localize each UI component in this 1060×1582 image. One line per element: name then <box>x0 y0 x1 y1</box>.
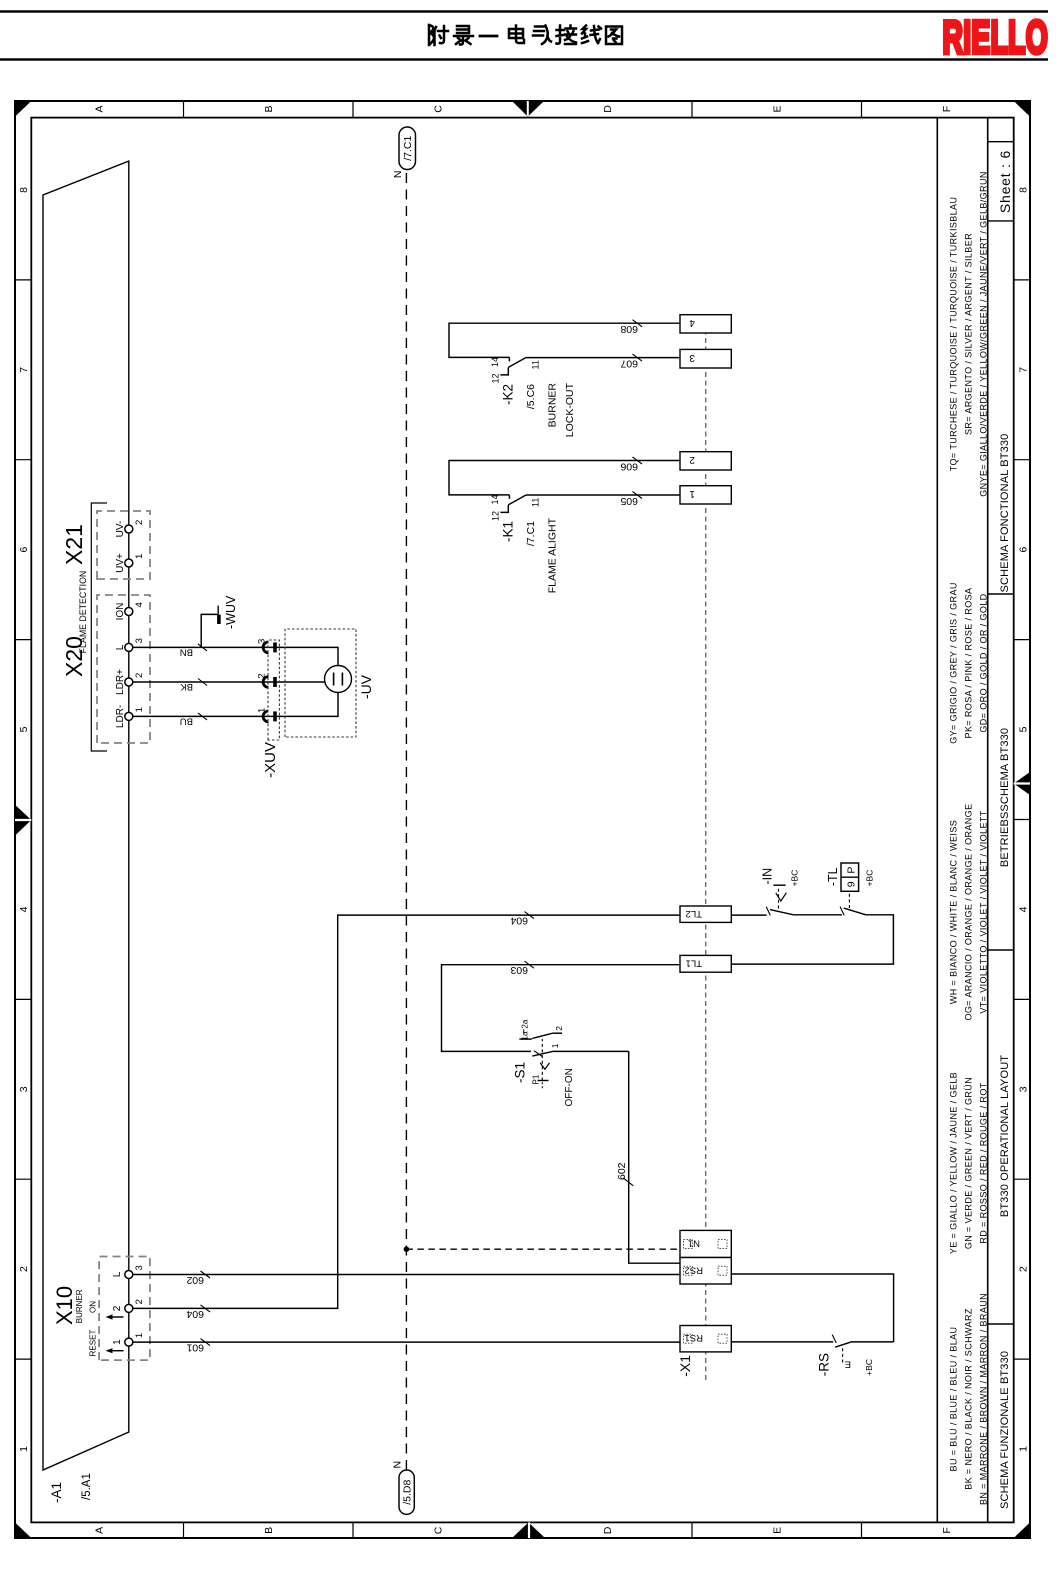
svg-text:604: 604 <box>510 915 528 927</box>
svg-text:RD = ROSSO / RED / ROUGE / ROT: RD = ROSSO / RED / ROUGE / ROT <box>979 1082 989 1243</box>
svg-text:1: 1 <box>550 1043 560 1048</box>
svg-text:E: E <box>772 1527 784 1534</box>
svg-text:2: 2 <box>554 1026 564 1031</box>
svg-text:2: 2 <box>689 454 695 465</box>
svg-text:+BC: +BC <box>790 870 800 887</box>
svg-text:P: P <box>846 867 858 874</box>
svg-text:-S1: -S1 <box>513 1062 528 1083</box>
svg-text:8: 8 <box>18 187 30 193</box>
svg-text:2: 2 <box>134 520 145 525</box>
svg-text:-XUV: -XUV <box>262 742 279 778</box>
svg-text:A: A <box>94 1527 106 1534</box>
svg-text:D: D <box>602 1526 614 1534</box>
svg-text:2: 2 <box>257 673 268 678</box>
svg-text:+BC: +BC <box>865 870 875 887</box>
svg-text:SR= ARGENTO / SILVER / ARGENT: SR= ARGENTO / SILVER / ARGENT / SILBER <box>964 233 974 435</box>
svg-text:GD= ORO / GOLD / OR / GOLD: GD= ORO / GOLD / OR / GOLD <box>979 593 989 732</box>
svg-text:FLAME ALIGHT: FLAME ALIGHT <box>547 517 559 593</box>
svg-text:14: 14 <box>490 357 500 367</box>
svg-text:2: 2 <box>134 1299 145 1304</box>
svg-text:-UV: -UV <box>358 674 374 699</box>
svg-text:OFF-ON: OFF-ON <box>564 1068 575 1106</box>
svg-text:-X1: -X1 <box>677 1355 693 1377</box>
svg-text:1: 1 <box>257 708 268 713</box>
svg-text:1: 1 <box>134 1333 145 1338</box>
svg-text:X21: X21 <box>61 524 87 565</box>
svg-text:+BC: +BC <box>864 1359 874 1376</box>
svg-text:3: 3 <box>1018 1086 1030 1092</box>
svg-text:RIELLO: RIELLO <box>943 12 1049 64</box>
svg-text:BU = BLU / BLUE / BLEU / BLAU: BU = BLU / BLUE / BLEU / BLAU <box>949 1327 959 1472</box>
svg-text:-TL: -TL <box>826 867 840 886</box>
svg-text:3: 3 <box>134 1265 145 1270</box>
svg-text:VT= VIOLETTO / VIOLET / VIOLET: VT= VIOLETTO / VIOLET / VIOLET / VIOLETT <box>979 810 989 1013</box>
svg-text:6: 6 <box>1018 547 1030 553</box>
svg-text:5: 5 <box>18 726 30 732</box>
svg-text:X10: X10 <box>52 1286 77 1325</box>
svg-text:C: C <box>433 1526 445 1534</box>
svg-text:P1: P1 <box>532 1074 541 1084</box>
svg-text:-K1: -K1 <box>501 521 516 542</box>
svg-text:LOCK-OUT: LOCK-OUT <box>564 382 576 437</box>
svg-text:E: E <box>845 1359 851 1370</box>
svg-text:-K2: -K2 <box>501 384 516 405</box>
svg-text:603: 603 <box>510 964 528 976</box>
svg-text:SCHEMA FONCTIONAL BT330: SCHEMA FONCTIONAL BT330 <box>999 434 1011 593</box>
svg-text:BURNER: BURNER <box>75 1289 84 1323</box>
svg-text:606: 606 <box>620 460 638 472</box>
svg-text:BT330 OPERATIONAL LAYOUT: BT330 OPERATIONAL LAYOUT <box>999 1055 1011 1217</box>
svg-text:TL1: TL1 <box>686 958 702 969</box>
svg-text:/5.C6: /5.C6 <box>525 384 537 409</box>
svg-text:1: 1 <box>134 707 145 712</box>
svg-text:E: E <box>772 105 784 112</box>
svg-text:SCHEMA FUNZIONALE BT330: SCHEMA FUNZIONALE BT330 <box>999 1351 1011 1509</box>
svg-text:7: 7 <box>18 367 30 373</box>
svg-text:602: 602 <box>186 1274 204 1286</box>
svg-text:N: N <box>392 171 404 179</box>
svg-text:4: 4 <box>134 602 145 607</box>
svg-text:C: C <box>433 105 445 113</box>
svg-text:3: 3 <box>257 639 268 644</box>
svg-text:3: 3 <box>134 638 145 643</box>
svg-text:11: 11 <box>531 360 541 369</box>
svg-text:GNYE= GIALLO/VERDE / YELLOW/GR: GNYE= GIALLO/VERDE / YELLOW/GREEN / JAUN… <box>979 171 989 497</box>
svg-text:TQ= TURCHESE / TURQUOISE / TUR: TQ= TURCHESE / TURQUOISE / TURQUOISE / T… <box>949 197 959 472</box>
svg-text:4: 4 <box>1018 906 1030 912</box>
svg-text:B: B <box>263 105 275 112</box>
svg-text:A: A <box>94 105 106 112</box>
svg-text:WH = BIANCO / WHITE / BLANC /: WH = BIANCO / WHITE / BLANC / WEISS <box>949 820 959 1004</box>
svg-text:5: 5 <box>1018 726 1030 732</box>
svg-text:4: 4 <box>689 317 695 328</box>
svg-text:12: 12 <box>491 373 501 383</box>
svg-text:602: 602 <box>616 1162 628 1180</box>
svg-text:2: 2 <box>18 1266 30 1272</box>
svg-text:BK: BK <box>180 681 193 692</box>
svg-text:601: 601 <box>186 1342 204 1354</box>
svg-text:BETRIEBSSCHEMA BT330: BETRIEBSSCHEMA BT330 <box>999 728 1011 867</box>
svg-text:-RS: -RS <box>817 1353 832 1376</box>
svg-text:OG= ARANCIO / ORANGE / ORANGE: OG= ARANCIO / ORANGE / ORANGE / ORANGE <box>964 804 974 1021</box>
svg-text:BURNER: BURNER <box>547 383 559 428</box>
svg-text:2a: 2a <box>521 1019 530 1028</box>
svg-text:GN = VERDE / GREEN / VERT / GR: GN = VERDE / GREEN / VERT / GRÜN <box>964 1077 974 1249</box>
svg-text:12: 12 <box>491 511 501 521</box>
svg-text:PK= ROSA / PINK / ROSE / ROSA: PK= ROSA / PINK / ROSE / ROSA <box>964 588 974 739</box>
svg-text:-A1: -A1 <box>49 1482 64 1503</box>
svg-text:FLAME DETECTION: FLAME DETECTION <box>78 571 88 654</box>
svg-text:3: 3 <box>18 1086 30 1092</box>
svg-text:1: 1 <box>689 488 695 499</box>
svg-text:F: F <box>941 1527 953 1533</box>
svg-text:N: N <box>392 1461 404 1469</box>
svg-text:605: 605 <box>620 495 638 507</box>
svg-text:F: F <box>941 106 953 112</box>
svg-text:3: 3 <box>689 352 695 363</box>
svg-text:-WUV: -WUV <box>224 595 238 629</box>
svg-text:GY= GRIGIO / GREY / GRIS / GRA: GY= GRIGIO / GREY / GRIS / GRAU <box>949 582 959 744</box>
svg-text:2: 2 <box>134 673 145 678</box>
svg-text:2: 2 <box>112 1305 123 1311</box>
svg-text:1: 1 <box>112 1339 123 1345</box>
svg-text:9: 9 <box>846 881 858 887</box>
svg-text:BK = NERO / BLACK / NOIR / SCH: BK = NERO / BLACK / NOIR / SCHWARZ <box>964 1308 974 1490</box>
svg-text:8: 8 <box>1018 187 1030 193</box>
svg-text:4: 4 <box>18 906 30 912</box>
svg-text:608: 608 <box>620 323 638 335</box>
svg-text:YE = GIALLO / YELLOW / JAUNE /: YE = GIALLO / YELLOW / JAUNE / GELB <box>949 1072 959 1254</box>
svg-text:B: B <box>263 1527 275 1534</box>
svg-text:D: D <box>602 105 614 113</box>
svg-text:-IN: -IN <box>761 868 775 885</box>
svg-text:/5.A1: /5.A1 <box>81 1473 93 1500</box>
svg-text:L: L <box>112 1271 123 1277</box>
svg-text:1: 1 <box>1018 1446 1030 1452</box>
svg-text:7: 7 <box>1018 367 1030 373</box>
svg-text:1: 1 <box>134 554 145 559</box>
svg-text:2: 2 <box>1018 1266 1030 1272</box>
svg-text:604: 604 <box>186 1308 204 1320</box>
svg-text:/5.D8: /5.D8 <box>402 1479 414 1504</box>
svg-text:14: 14 <box>490 494 500 504</box>
svg-text:BN: BN <box>180 647 193 658</box>
svg-text:BU: BU <box>180 716 193 727</box>
svg-text:1: 1 <box>18 1446 30 1452</box>
svg-text:6: 6 <box>18 547 30 553</box>
svg-text:TL2: TL2 <box>686 908 702 919</box>
svg-text:RESET: RESET <box>89 1330 98 1357</box>
svg-text:/7.C1: /7.C1 <box>402 135 414 160</box>
svg-text:BN = MARRONE / BROWN / MARRON: BN = MARRONE / BROWN / MARRON / BRAUN <box>979 1293 989 1505</box>
svg-text:Sheet : 6: Sheet : 6 <box>997 150 1013 213</box>
svg-text:607: 607 <box>620 358 638 370</box>
svg-text:/7.C1: /7.C1 <box>525 521 537 546</box>
svg-text:ON: ON <box>89 1301 98 1313</box>
svg-text:1a: 1a <box>521 1031 530 1040</box>
svg-text:11: 11 <box>531 498 541 507</box>
